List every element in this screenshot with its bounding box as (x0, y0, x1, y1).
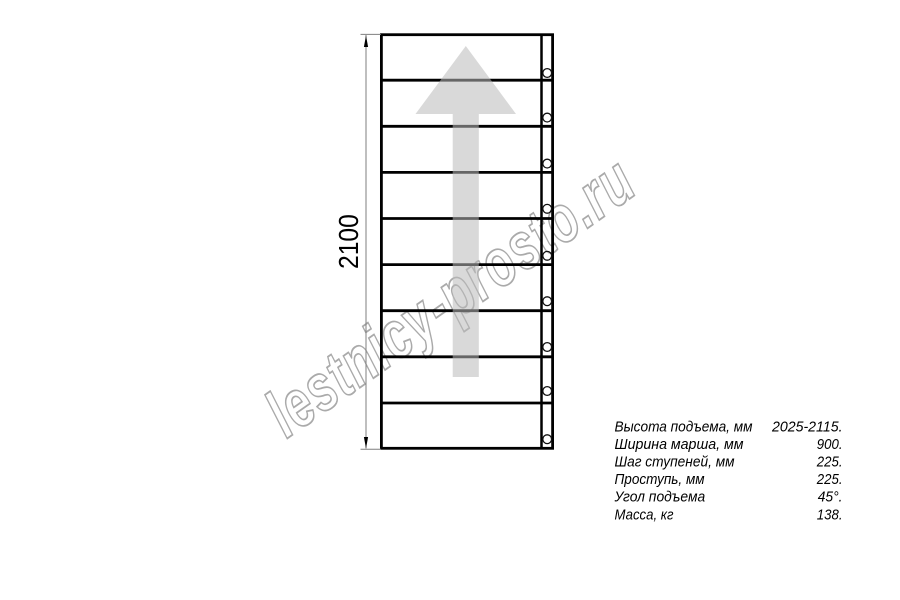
svg-text:225.: 225. (816, 471, 843, 488)
svg-text:Масса, кг: Масса, кг (615, 506, 675, 523)
svg-text:138.: 138. (817, 506, 843, 523)
svg-text:2100: 2100 (333, 214, 365, 269)
svg-text:Ширина марша, мм: Ширина марша, мм (615, 436, 744, 453)
svg-text:45°.: 45°. (818, 489, 843, 506)
svg-text:2025-2115.: 2025-2115. (771, 419, 842, 436)
svg-text:900.: 900. (817, 436, 843, 453)
svg-text:Шаг ступеней, мм: Шаг ступеней, мм (615, 454, 735, 471)
svg-text:225.: 225. (816, 454, 843, 471)
svg-text:Высота подъема, мм: Высота подъема, мм (615, 419, 753, 436)
svg-text:Проступь, мм: Проступь, мм (615, 471, 705, 488)
svg-text:Угол подъема: Угол подъема (614, 489, 706, 506)
